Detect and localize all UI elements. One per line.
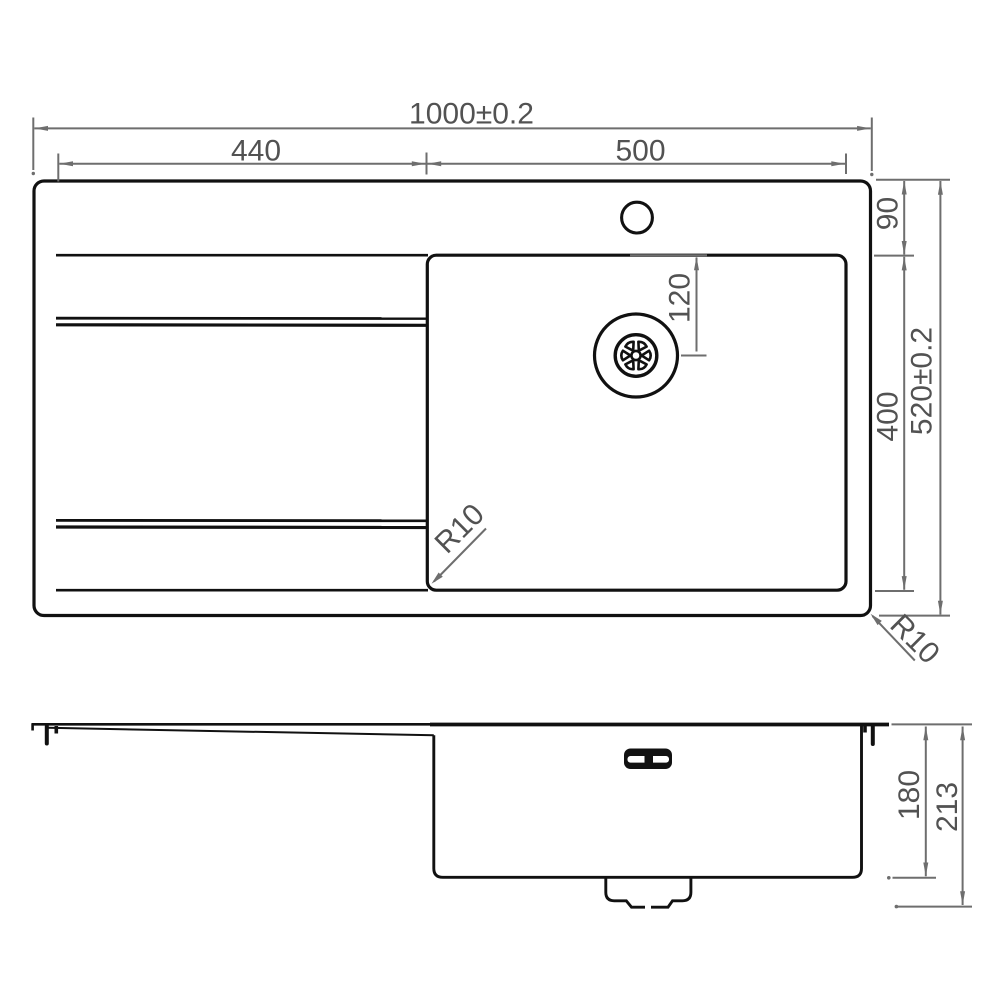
svg-text:180: 180 bbox=[893, 770, 926, 820]
svg-text:R10: R10 bbox=[429, 498, 491, 560]
svg-text:440: 440 bbox=[231, 135, 281, 168]
svg-text:90: 90 bbox=[872, 197, 905, 230]
svg-text:1000±0.2: 1000±0.2 bbox=[409, 98, 534, 131]
svg-text:120: 120 bbox=[664, 273, 697, 323]
svg-text:213: 213 bbox=[931, 782, 964, 832]
svg-text:520±0.2: 520±0.2 bbox=[906, 327, 939, 435]
svg-text:R10: R10 bbox=[884, 608, 946, 670]
svg-text:500: 500 bbox=[615, 135, 665, 168]
svg-text:400: 400 bbox=[872, 391, 905, 441]
